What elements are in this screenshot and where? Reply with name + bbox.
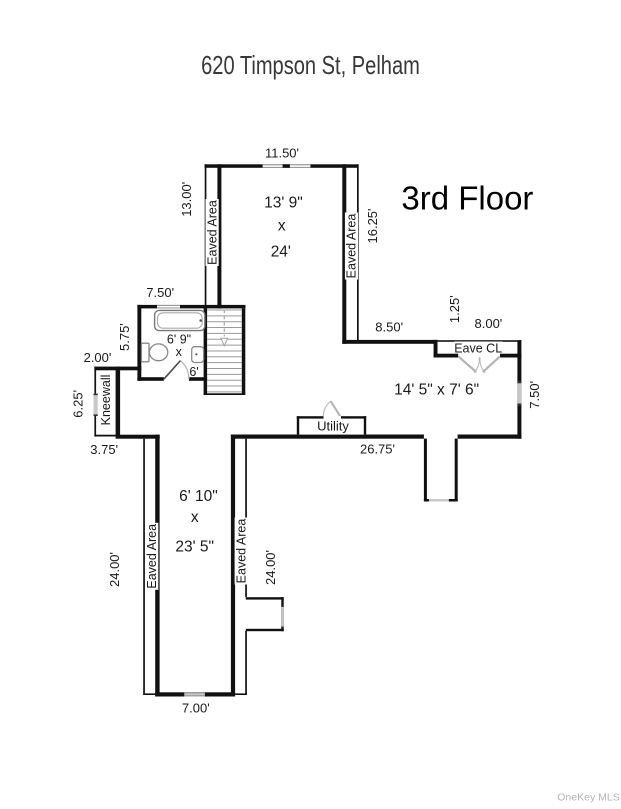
svg-text:8.00': 8.00' xyxy=(475,316,503,331)
svg-text:1.25': 1.25' xyxy=(447,295,462,323)
svg-text:6' 10": 6' 10" xyxy=(179,488,218,505)
svg-text:3rd Floor: 3rd Floor xyxy=(401,180,533,217)
svg-text:OneKey MLS: OneKey MLS xyxy=(557,791,619,803)
svg-text:620 Timpson St, Pelham: 620 Timpson St, Pelham xyxy=(201,51,420,80)
svg-text:x: x xyxy=(278,218,286,235)
svg-text:26.75': 26.75' xyxy=(360,441,395,456)
svg-text:7.50': 7.50' xyxy=(146,285,174,300)
svg-text:x: x xyxy=(176,345,183,359)
svg-text:Kneewall: Kneewall xyxy=(99,375,113,426)
svg-text:14' 5" x 7' 6": 14' 5" x 7' 6" xyxy=(394,382,479,399)
svg-text:7.00': 7.00' xyxy=(182,701,210,716)
svg-text:8.50': 8.50' xyxy=(375,319,403,334)
svg-text:Eaved Area: Eaved Area xyxy=(235,519,249,584)
svg-text:Eaved Area: Eaved Area xyxy=(145,524,159,589)
svg-text:24.00': 24.00' xyxy=(107,552,122,587)
svg-text:x: x xyxy=(191,509,199,526)
svg-text:11.50': 11.50' xyxy=(265,145,299,160)
svg-text:7.50': 7.50' xyxy=(527,381,542,409)
svg-text:Eaved Area: Eaved Area xyxy=(206,200,220,265)
svg-text:6': 6' xyxy=(189,365,198,379)
svg-text:6.25': 6.25' xyxy=(71,390,86,418)
svg-text:Eave CL: Eave CL xyxy=(454,341,502,355)
svg-text:24.00': 24.00' xyxy=(263,550,278,585)
svg-text:23' 5": 23' 5" xyxy=(175,538,214,555)
svg-text:3.75': 3.75' xyxy=(90,442,118,457)
svg-text:Eaved Area: Eaved Area xyxy=(345,214,359,279)
svg-text:24': 24' xyxy=(271,244,291,261)
svg-text:2.00': 2.00' xyxy=(84,350,112,365)
svg-text:5.75': 5.75' xyxy=(117,323,132,351)
svg-text:13' 9": 13' 9" xyxy=(264,195,303,212)
svg-text:16.25': 16.25' xyxy=(365,208,380,243)
svg-text:Utility: Utility xyxy=(317,418,349,433)
svg-text:13.00': 13.00' xyxy=(179,182,194,217)
